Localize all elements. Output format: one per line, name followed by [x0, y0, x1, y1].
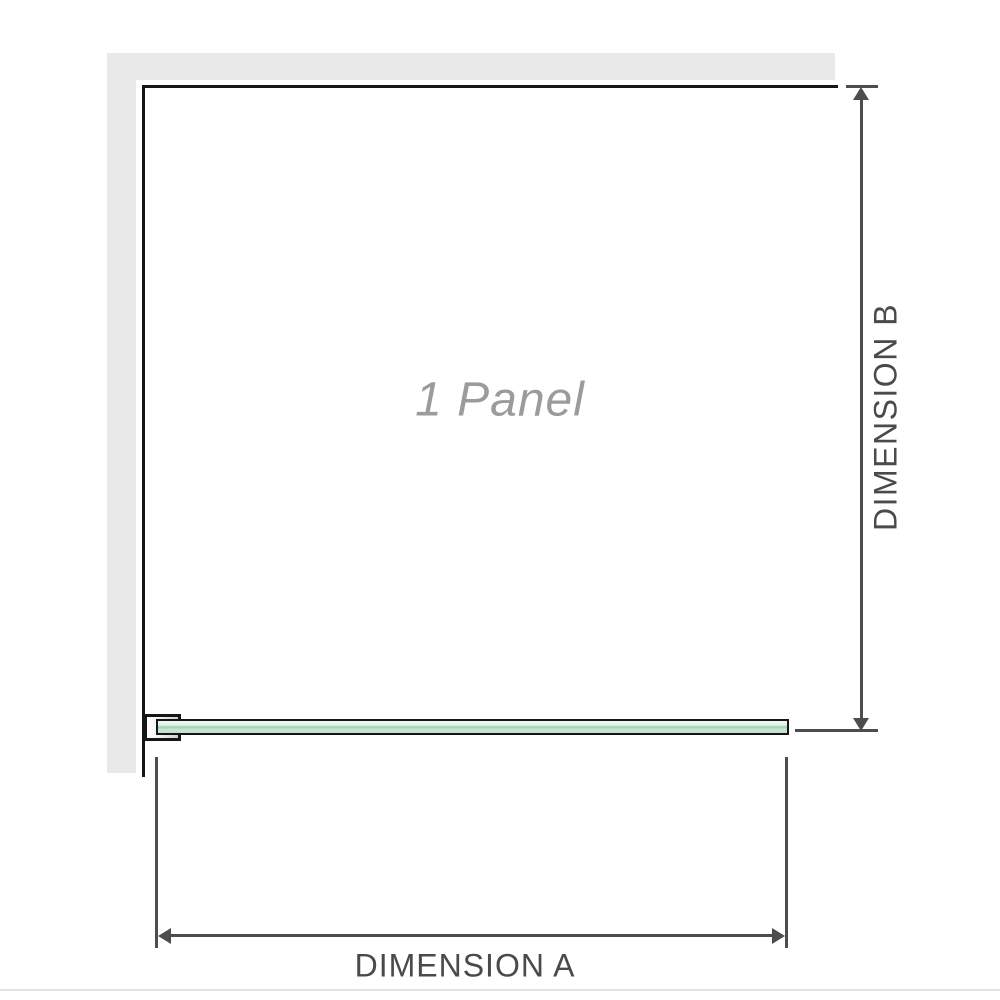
wall-section-top — [107, 53, 835, 80]
panel-outline-top-edge — [142, 85, 838, 88]
dimension-b-label: DIMENSION B — [868, 303, 905, 531]
dimension-b-line — [860, 97, 863, 720]
dimension-a-label: DIMENSION A — [355, 948, 576, 985]
panel-count-label: 1 Panel — [415, 373, 585, 428]
dimension-a-line — [162, 934, 782, 937]
arrow-left-icon — [158, 928, 171, 944]
arrow-up-icon — [853, 87, 869, 100]
arrow-down-icon — [853, 718, 869, 731]
dimension-a-tick-left — [155, 757, 158, 948]
glass-panel-plan-view — [156, 719, 789, 735]
panel-outline-left-edge — [142, 85, 145, 777]
wall-section-left — [107, 53, 136, 773]
dimension-a-tick-right — [785, 757, 788, 948]
arrow-right-icon — [772, 928, 785, 944]
footer-divider — [0, 989, 1000, 991]
dimension-diagram: 1 Panel DIMENSION B DIMENSION A — [0, 0, 1000, 1000]
